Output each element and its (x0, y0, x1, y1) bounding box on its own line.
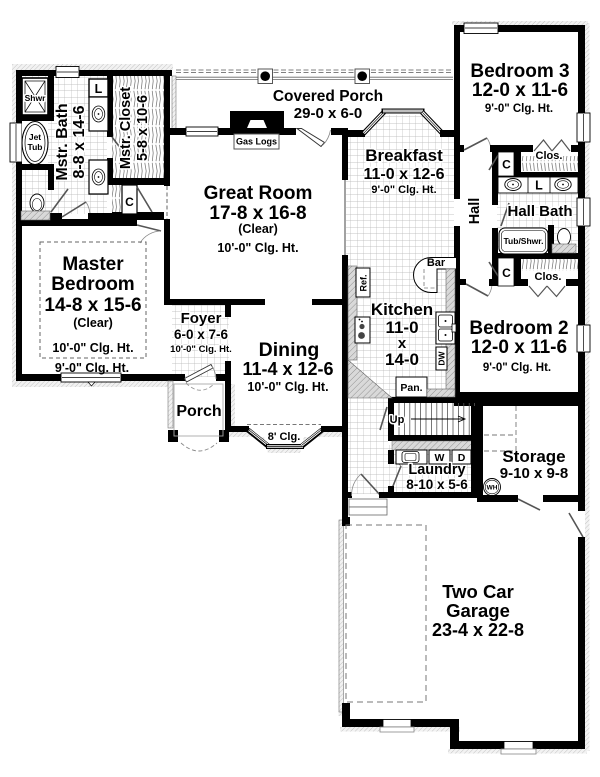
svg-text:9'-0" Clg. Ht.: 9'-0" Clg. Ht. (483, 362, 551, 374)
svg-text:10'-0" Clg. Ht.: 10'-0" Clg. Ht. (170, 344, 232, 355)
svg-text:Dining: Dining (259, 339, 320, 361)
svg-text:12-0 x 11-6: 12-0 x 11-6 (472, 80, 568, 101)
svg-text:17-8 x 16-8: 17-8 x 16-8 (209, 203, 306, 224)
svg-text:11-4 x 12-6: 11-4 x 12-6 (242, 359, 333, 379)
svg-text:Bar: Bar (427, 257, 446, 269)
svg-text:5-8 x 10-6: 5-8 x 10-6 (135, 95, 151, 161)
svg-text:Bedroom 2: Bedroom 2 (469, 318, 568, 339)
svg-text:Hall: Hall (467, 198, 483, 225)
svg-text:Storage: Storage (502, 447, 565, 466)
svg-text:Up: Up (390, 414, 405, 426)
svg-text:Laundry: Laundry (408, 462, 465, 478)
svg-text:29-0 x 6-0: 29-0 x 6-0 (294, 105, 362, 122)
svg-text:10'-0" Clg. Ht.: 10'-0" Clg. Ht. (217, 241, 298, 255)
svg-text:9-10 x 9-8: 9-10 x 9-8 (500, 465, 568, 482)
svg-text:Jet: Jet (29, 132, 41, 142)
svg-text:14-8 x 15-6: 14-8 x 15-6 (44, 295, 141, 316)
svg-text:Pan.: Pan. (400, 382, 422, 394)
svg-text:Two Car: Two Car (442, 581, 514, 602)
svg-text:Bedroom: Bedroom (51, 274, 134, 295)
svg-text:(Clear): (Clear) (73, 316, 113, 330)
svg-text:Clos.: Clos. (535, 271, 562, 283)
svg-text:L: L (95, 82, 103, 96)
svg-text:9'-0" Clg. Ht.: 9'-0" Clg. Ht. (485, 103, 553, 115)
svg-text:C: C (125, 195, 134, 209)
svg-text:Mstr. Bath: Mstr. Bath (54, 103, 71, 180)
svg-text:Mstr. Closet: Mstr. Closet (118, 87, 134, 169)
svg-text:9'-0" Clg. Ht.: 9'-0" Clg. Ht. (371, 184, 436, 196)
svg-text:L: L (535, 179, 543, 193)
svg-text:8-8 x 14-6: 8-8 x 14-6 (71, 105, 88, 178)
svg-text:23-4 x 22-8: 23-4 x 22-8 (432, 620, 524, 640)
svg-text:Great Room: Great Room (204, 183, 313, 204)
svg-text:Bedroom 3: Bedroom 3 (470, 61, 569, 82)
svg-text:Shwr: Shwr (25, 93, 46, 103)
svg-text:Gas Logs: Gas Logs (236, 137, 277, 147)
svg-text:Ref.: Ref. (359, 274, 369, 291)
svg-text:12-0 x 11-6: 12-0 x 11-6 (471, 337, 567, 358)
svg-text:Clos.: Clos. (536, 150, 563, 162)
svg-text:10'-0" Clg. Ht.: 10'-0" Clg. Ht. (52, 341, 133, 355)
svg-text:Master: Master (62, 254, 124, 275)
svg-text:DW: DW (437, 350, 447, 365)
svg-text:Tub: Tub (28, 142, 43, 152)
svg-text:8-10 x 5-6: 8-10 x 5-6 (406, 477, 468, 492)
svg-text:WH: WH (487, 485, 498, 492)
svg-text:Covered Porch: Covered Porch (273, 88, 383, 105)
svg-text:14-0: 14-0 (385, 350, 419, 369)
svg-text:9'-0" Clg. Ht.: 9'-0" Clg. Ht. (55, 361, 129, 375)
svg-text:(Clear): (Clear) (238, 222, 278, 236)
svg-text:10'-0" Clg. Ht.: 10'-0" Clg. Ht. (247, 380, 328, 394)
svg-text:Hall Bath: Hall Bath (507, 203, 572, 220)
svg-text:11-0 x 12-6: 11-0 x 12-6 (364, 166, 445, 183)
svg-text:Garage: Garage (446, 600, 510, 621)
svg-text:Breakfast: Breakfast (365, 146, 443, 165)
svg-text:Foyer: Foyer (181, 310, 222, 327)
svg-text:6-0 x 7-6: 6-0 x 7-6 (174, 327, 229, 342)
svg-text:C: C (502, 158, 511, 172)
svg-text:8' Clg.: 8' Clg. (268, 431, 301, 443)
svg-text:Porch: Porch (176, 403, 221, 420)
svg-text:Kitchen: Kitchen (371, 300, 433, 319)
svg-text:Tub/Shwr.: Tub/Shwr. (504, 236, 544, 246)
svg-text:C: C (502, 266, 511, 280)
